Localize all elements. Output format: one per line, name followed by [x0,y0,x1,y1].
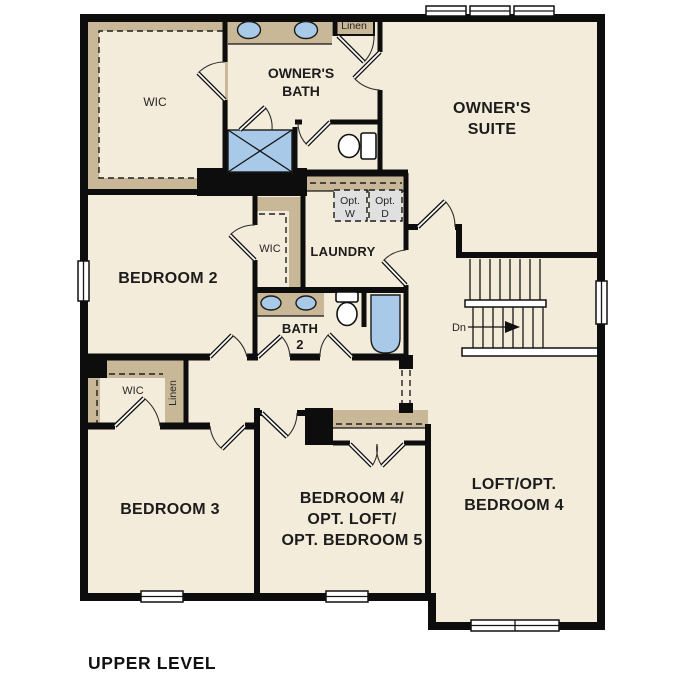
label-bedroom4: BEDROOM 4/ [300,490,405,507]
label-laundry: LAUNDRY [310,244,375,259]
floor-plan-drawing: WIC OWNER'S BATH Linen OWNER'S SUITE BED… [0,0,687,687]
label-wic-bedroom3: WIC [122,385,143,397]
plan-title: UPPER LEVEL [88,653,216,673]
label-loft: LOFT/OPT. [472,476,556,493]
toilet-tank-icon [361,133,376,159]
floor-plan-page: WIC OWNER'S BATH Linen OWNER'S SUITE BED… [0,0,687,687]
toilet-icon [337,303,357,326]
stair-landing [465,300,546,307]
label-bedroom3: BEDROOM 3 [120,501,220,518]
label-owners-bath: OWNER'S [268,65,334,81]
wall-corner-wic3 [80,357,107,378]
wall-stub-loft-opening-bottom [399,403,413,413]
wic2-shelf-top [257,197,303,211]
sink-icon [296,296,316,310]
wall-stub-loft-opening-top [399,355,413,369]
label-opt-washer: Opt. [340,195,360,207]
label-bedroom2: BEDROOM 2 [118,270,218,287]
bed4-closet-shelf [333,410,428,428]
label-linen-upper: Linen [341,20,367,32]
wic3-shelf [107,360,165,378]
stair-rail [462,348,602,356]
sink-icon [238,22,261,39]
label-bath2: 2 [296,337,304,352]
label-opt-washer: W [345,208,355,220]
label-owners-bath: BATH [282,83,320,99]
label-bath2: BATH [282,321,318,336]
label-stairs-dn: Dn [452,322,466,334]
wall-bed4-closet-block [305,408,333,445]
label-owners-suite: OWNER'S [453,100,531,117]
label-bedroom4: OPT. LOFT/ [307,511,396,528]
bathtub-icon [371,295,400,353]
label-opt-dryer: D [381,208,389,220]
label-linen-lower: Linen [167,380,179,406]
label-wic-owner: WIC [143,95,167,109]
toilet-tank-icon [336,292,358,302]
sink-icon [295,22,318,39]
label-loft: BEDROOM 4 [464,497,564,514]
label-bedroom4: OPT. BEDROOM 5 [281,532,422,549]
label-opt-dryer: Opt. [375,195,395,207]
label-owners-suite: SUITE [468,121,517,138]
label-wic-bedroom2: WIC [259,243,280,255]
toilet-icon [339,135,360,158]
sink-icon [261,296,281,310]
